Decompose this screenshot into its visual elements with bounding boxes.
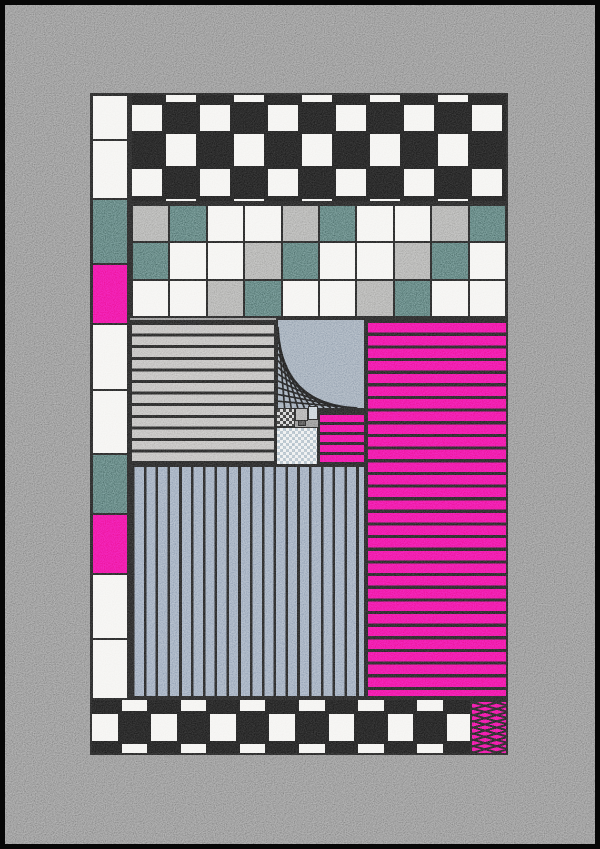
bottom-checkerboard-cell	[181, 700, 207, 711]
top-checkerboard-cell	[370, 134, 400, 166]
top-checkerboard-cell	[370, 95, 400, 102]
top-checkerboard-cell	[132, 105, 162, 131]
left-column-cell	[92, 639, 128, 700]
string-art-lines	[278, 320, 364, 408]
bottom-checkerboard-cell	[358, 700, 384, 711]
color-grid-cell	[469, 280, 506, 318]
bottom-checkerboard-cell	[210, 714, 236, 741]
left-column-cell	[92, 264, 128, 324]
bottom-checkerboard-cell	[240, 744, 266, 754]
artwork-canvas	[0, 0, 600, 849]
top-checkerboard-cell	[200, 169, 230, 196]
top-checkerboard-cell	[472, 105, 502, 131]
left-column-cell	[92, 140, 128, 199]
color-grid-cell	[394, 205, 431, 242]
top-checkerboard-cell	[166, 199, 196, 202]
top-checkerboard-cell	[166, 95, 196, 102]
top-checkerboard-cell	[268, 169, 298, 196]
left-column-cell	[92, 324, 128, 390]
color-grid-cell	[207, 242, 244, 280]
color-grid	[130, 203, 508, 318]
gray-stripes-panel	[130, 320, 276, 465]
color-grid-cell	[169, 242, 206, 280]
top-checkerboard-cell	[234, 95, 264, 102]
bottom-checkerboard-cell	[269, 714, 295, 741]
top-checkerboard-cell	[234, 134, 264, 166]
color-grid-cell	[244, 280, 281, 318]
top-checkerboard-cell	[200, 105, 230, 131]
bottom-checkerboard-cell	[151, 714, 177, 741]
color-grid-cell	[394, 280, 431, 318]
pink-stripes-panel	[366, 318, 508, 698]
color-grid-cell	[282, 205, 319, 242]
color-grid-cell	[282, 242, 319, 280]
curve-panel	[276, 318, 366, 410]
color-grid-cell	[394, 242, 431, 280]
top-checkerboard-cell	[336, 169, 366, 196]
color-grid-cell	[169, 205, 206, 242]
color-grid-cell	[244, 242, 281, 280]
vertical-stripes-panel	[130, 465, 366, 698]
color-grid-cell	[469, 205, 506, 242]
color-grid-cell	[356, 242, 393, 280]
color-grid-cell	[244, 205, 281, 242]
color-grid-cell	[356, 280, 393, 318]
top-checkerboard-cell	[302, 134, 332, 166]
bottom-checkerboard-cell	[417, 744, 443, 754]
top-checkerboard-cell	[472, 169, 502, 196]
color-grid-cell	[431, 242, 468, 280]
bottom-checkerboard-cell	[92, 714, 118, 741]
bottom-checkerboard-cell	[329, 714, 355, 741]
bottom-checkerboard-cell	[358, 744, 384, 754]
pale-blue-chip	[308, 406, 318, 420]
color-grid-cell	[207, 280, 244, 318]
left-column-cell	[92, 454, 128, 514]
color-grid-cell	[319, 242, 356, 280]
top-checkerboard-cell	[132, 169, 162, 196]
bottom-checkerboard-cell	[299, 700, 325, 711]
top-checkerboard-cell	[302, 199, 332, 202]
top-checkerboard	[130, 93, 508, 203]
top-checkerboard-cell	[370, 199, 400, 202]
bottom-checkerboard	[90, 698, 508, 755]
bottom-checkerboard-cell	[447, 714, 473, 741]
top-checkerboard-cell	[336, 105, 366, 131]
left-column-cell	[92, 199, 128, 264]
color-grid-cell	[132, 280, 169, 318]
quilt	[0, 0, 600, 849]
color-grid-cell	[431, 280, 468, 318]
color-grid-cell	[169, 280, 206, 318]
left-column-cell	[92, 390, 128, 454]
color-grid-cell	[469, 242, 506, 280]
top-checkerboard-cell	[438, 199, 468, 202]
color-grid-cell	[356, 205, 393, 242]
color-grid-cell	[319, 205, 356, 242]
bottom-checkerboard-cell	[181, 744, 207, 754]
left-column	[90, 93, 130, 700]
color-grid-cell	[132, 242, 169, 280]
color-grid-cell	[282, 280, 319, 318]
color-grid-cell	[319, 280, 356, 318]
crosshatch-panel	[470, 700, 508, 755]
bottom-checkerboard-cell	[122, 700, 148, 711]
bottom-checkerboard-cell	[240, 700, 266, 711]
bottom-checkerboard-cell	[299, 744, 325, 754]
bottom-checkerboard-cell	[122, 744, 148, 754]
dither-dark-chip	[276, 408, 295, 427]
top-checkerboard-cell	[166, 134, 196, 166]
top-checkerboard-cell	[438, 134, 468, 166]
color-grid-cell	[431, 205, 468, 242]
bottom-checkerboard-cell	[417, 700, 443, 711]
top-checkerboard-cell	[404, 169, 434, 196]
top-checkerboard-cell	[234, 199, 264, 202]
color-grid-cell	[132, 205, 169, 242]
top-checkerboard-cell	[438, 95, 468, 102]
small-pink-stripes	[318, 410, 366, 465]
dark-chip	[298, 420, 306, 426]
top-checkerboard-cell	[302, 95, 332, 102]
left-column-cell	[92, 574, 128, 639]
left-column-cell	[92, 95, 128, 140]
top-checkerboard-cell	[404, 105, 434, 131]
left-column-cell	[92, 514, 128, 574]
dither-light-panel	[276, 427, 318, 465]
bottom-checkerboard-cell	[388, 714, 414, 741]
top-checkerboard-cell	[268, 105, 298, 131]
color-grid-cell	[207, 205, 244, 242]
